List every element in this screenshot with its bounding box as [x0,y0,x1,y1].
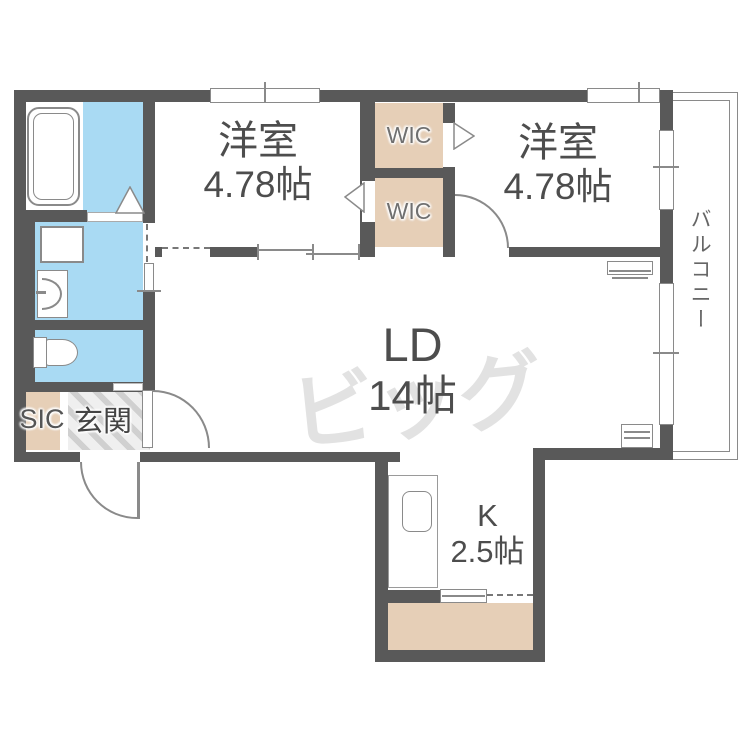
window-tick [653,166,679,168]
wall-bath-washroom [14,210,87,222]
wall-washroom-toilet [26,320,145,330]
toilet-tank [33,337,47,368]
bedroom1-opening-dash [162,247,210,249]
front-door-opening [80,452,140,462]
window-tick [638,82,640,103]
entrance-hall-door-arc [153,390,210,448]
wall-kitchen-bottom [388,590,440,603]
window-tick [653,352,679,354]
bedroom2-door-opening [455,247,509,257]
kitchen-window-line [442,595,485,597]
washroom-door-tick [137,290,161,292]
kitchen-dash [487,594,533,596]
bathtub [27,107,80,206]
wall-kitchen-left [375,452,388,662]
ac-unit-ld-top [607,261,653,275]
room-size: 4.78帖 [160,164,356,207]
room-size: 4.78帖 [460,166,656,209]
front-door-arc [80,462,137,519]
ac-unit-line [624,437,650,439]
room-name: 洋室 [460,120,656,166]
wall-top-left [14,90,210,102]
ac-unit-base [612,277,648,279]
bedroom-right-label: 洋室 4.78帖 [460,120,656,209]
service-porch-floor [388,603,533,650]
toilet-bowl [45,339,78,366]
toilet-door-threshold [113,383,143,391]
washbasin [37,270,68,318]
wall-wic-divider [375,168,443,178]
washroom-door-leaf [144,263,154,292]
balcony-label: バルコニー [687,208,711,333]
wic-bottom-label: WIC [375,198,443,224]
washroom-sliding-door-dash [146,224,148,262]
wall-porch-bottom [375,650,545,662]
ld-balcony-window [659,283,674,425]
entrance-label: 玄関 [58,406,148,439]
sliding-door-tick [312,244,314,260]
room-size: 2.5帖 [420,534,555,570]
bath-door-triangle [115,186,145,215]
sliding-door-line [306,253,360,255]
wic-top-label: WIC [375,122,443,148]
bedroom-left-label: 洋室 4.78帖 [160,118,356,207]
room-size: 14帖 [320,372,505,420]
ac-unit-line [609,270,651,272]
room-name: LD [320,318,505,372]
ac-unit-ld-bottom [621,424,653,448]
sliding-door-tick [358,244,360,260]
window-tick [264,82,266,103]
bedroom2-balcony-window [659,130,674,210]
front-door-leaf [137,462,140,519]
wall-bottom-right [535,448,673,460]
room-name: K [420,498,555,534]
kitchen-label: K 2.5帖 [420,498,555,569]
living-dining-label: LD 14帖 [320,318,505,420]
washing-machine-pan [40,226,84,263]
sliding-door-tick [257,244,259,260]
wall-bedroom1-wic [360,101,375,257]
ac-unit-line [624,431,650,433]
sliding-door-line [258,249,314,251]
bedroom2-top-window [587,88,660,103]
room-name: 洋室 [160,118,356,164]
floorplan: ビッグ 洋室 4.78帖 洋室 4.78帖 LD 14帖 K 2.5帖 WIC … [0,0,750,750]
